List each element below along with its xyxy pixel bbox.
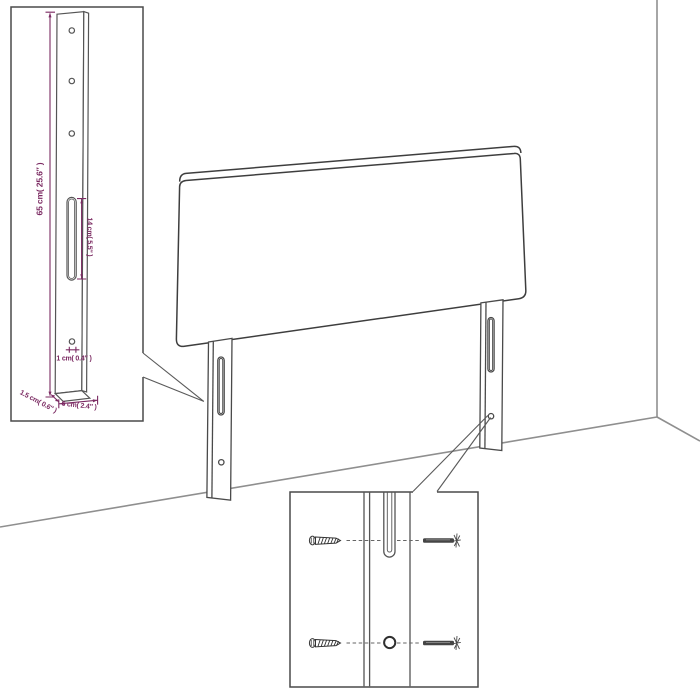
leg-slot xyxy=(218,357,224,415)
leg-hole-top xyxy=(69,28,74,33)
leg-slot xyxy=(488,318,494,373)
headboard-leg-left xyxy=(207,338,232,500)
leg-hole xyxy=(219,460,224,465)
page: 65 cm( 25.6″ ) 14 cm( 5.5″ ) 1 cm( 0.4″ … xyxy=(0,0,700,700)
leg-hole-bottom xyxy=(69,339,74,344)
leg-hole xyxy=(488,414,493,419)
leg-hole-middle xyxy=(69,78,74,83)
callout-line-fixing-right xyxy=(437,418,491,492)
headboard-panel xyxy=(176,146,525,346)
label-slot-length: 14 cm( 5.5″ ) xyxy=(85,218,92,257)
leg-hole-lower xyxy=(69,131,74,136)
callout-line-fixing-left xyxy=(413,416,488,492)
label-leg-height: 65 cm( 25.6″ ) xyxy=(36,163,45,216)
diagram-canvas xyxy=(0,0,700,700)
callout-line-leg-lower xyxy=(143,377,204,401)
detail-inset-fixings xyxy=(290,492,478,687)
callout-lines xyxy=(143,353,491,492)
headboard-front-face xyxy=(176,153,525,346)
callout-line-leg-upper xyxy=(143,353,204,401)
floor-line-right xyxy=(657,417,700,441)
label-hole-diameter: 1 cm( 0.4″ ) xyxy=(56,355,91,362)
